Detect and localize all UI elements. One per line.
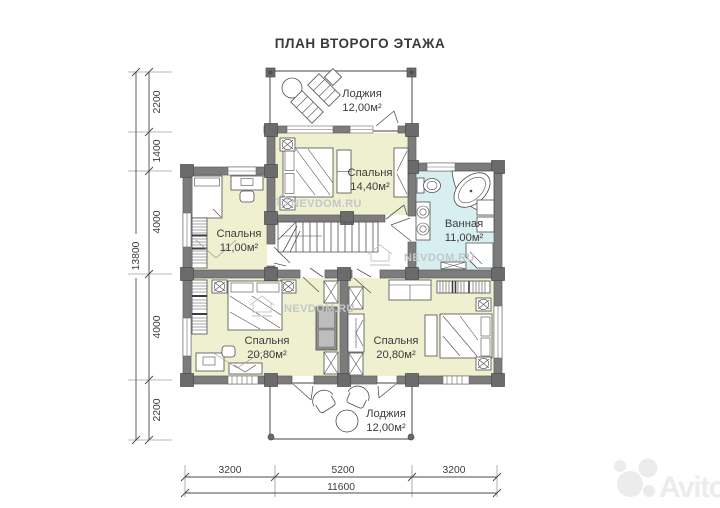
dim-bottom-total: 11600 <box>327 482 355 493</box>
chair <box>222 346 235 357</box>
cabinet <box>477 200 494 215</box>
window-bottom-wall-1 <box>228 376 258 384</box>
ottoman <box>476 357 491 370</box>
avito-logo-circle <box>639 459 658 478</box>
window-right-wall <box>494 306 502 358</box>
room-label-loggia-bottom-area: 12,00м² <box>366 422 406 434</box>
dresser <box>437 281 490 293</box>
dim-left-2: 4000 <box>152 210 163 233</box>
avito-logo-circle <box>643 485 655 497</box>
dim-left-3: 4000 <box>152 315 163 338</box>
window-loggia-top-2 <box>350 126 373 133</box>
avito-watermark: Avito <box>614 459 720 505</box>
room-label-bathroom-area: 11,00м² <box>445 232 484 244</box>
desk <box>196 353 224 371</box>
wardrobe-x <box>324 281 338 303</box>
dimensions-bottom: 3200 5200 3200 11600 <box>181 465 501 497</box>
window-bathroom-top <box>427 163 455 171</box>
toilet <box>417 178 441 193</box>
wardrobe-x <box>324 352 338 374</box>
furniture-loggia-top <box>282 69 341 124</box>
room-label-bedroom-top-name: Спальня <box>348 167 393 179</box>
avito-logo-text: Avito <box>659 471 720 504</box>
room-label-bedroom-top-area: 14,40м² <box>350 181 390 193</box>
desk <box>231 176 263 190</box>
double-bed <box>228 281 282 330</box>
dim-left-1: 1400 <box>152 139 163 162</box>
floor-plan-page: ПЛАН ВТОРОГО ЭТАЖА <box>0 0 720 508</box>
window-left-wall-2 <box>183 318 191 356</box>
single-bed <box>192 176 222 218</box>
page-title: ПЛАН ВТОРОГО ЭТАЖА <box>0 36 720 51</box>
ottoman <box>476 298 491 311</box>
window-left-wall-1 <box>183 213 191 247</box>
room-label-bedroom-br-name: Спальня <box>374 335 419 347</box>
window-loggia-top-1 <box>287 126 333 133</box>
window-bottom-wall-2 <box>443 376 469 384</box>
nevdom-watermark-3: NEVDOM.RU <box>284 303 355 315</box>
round-table <box>336 410 358 432</box>
nevdom-watermark-2: NEVDOM.RU <box>404 252 475 264</box>
room-label-bedroom-br-area: 20,80м² <box>376 349 416 361</box>
mirror-stand <box>348 314 364 352</box>
nevdom-house-icon <box>368 245 392 265</box>
room-label-loggia-top-area: 12,00м² <box>342 102 382 114</box>
floor-plan-drawing: Лоджия 12,00м² Спальня 14,40м² Ванная 11… <box>0 0 720 508</box>
wardrobe-x <box>349 353 363 375</box>
nevdom-watermark-1: NEVDOM.RU <box>291 198 362 210</box>
ottoman <box>281 280 296 293</box>
sofa <box>389 280 431 300</box>
room-label-bedroom-bl-name: Спальня <box>245 335 290 347</box>
stairs <box>278 222 378 252</box>
room-label-loggia-top-name: Лоджия <box>342 88 382 100</box>
chair <box>240 191 254 202</box>
room-label-bedroom-bl-area: 20,80м² <box>247 349 287 361</box>
avito-logo-circle <box>614 460 626 472</box>
closet <box>394 148 408 197</box>
avito-logo-circle <box>617 471 643 497</box>
vanity-sinks <box>416 202 430 240</box>
armchair <box>309 386 338 415</box>
shelf <box>229 363 262 374</box>
ottoman <box>280 138 295 151</box>
room-label-bathroom-name: Ванная <box>445 218 483 230</box>
dimensions-left: 2200 1400 4000 4000 2200 13800 <box>128 68 172 444</box>
ottoman <box>212 280 227 293</box>
wardrobe <box>192 280 207 334</box>
dim-bottom-0: 3200 <box>219 465 242 476</box>
dim-bottom-1: 5200 <box>332 465 355 476</box>
dim-left-0: 2200 <box>152 90 163 113</box>
room-label-bedroom-left-name: Спальня <box>217 228 262 240</box>
window-bedroom-left-top <box>228 167 256 175</box>
dim-bottom-2: 3200 <box>443 465 466 476</box>
rug <box>425 315 437 356</box>
dim-left-total: 13800 <box>131 241 142 270</box>
room-label-bedroom-left-area: 11,00м² <box>220 242 259 254</box>
furniture-loggia-bottom <box>309 383 373 432</box>
dim-left-4: 2200 <box>152 398 163 421</box>
room-label-loggia-bottom-name: Лоджия <box>366 408 406 420</box>
